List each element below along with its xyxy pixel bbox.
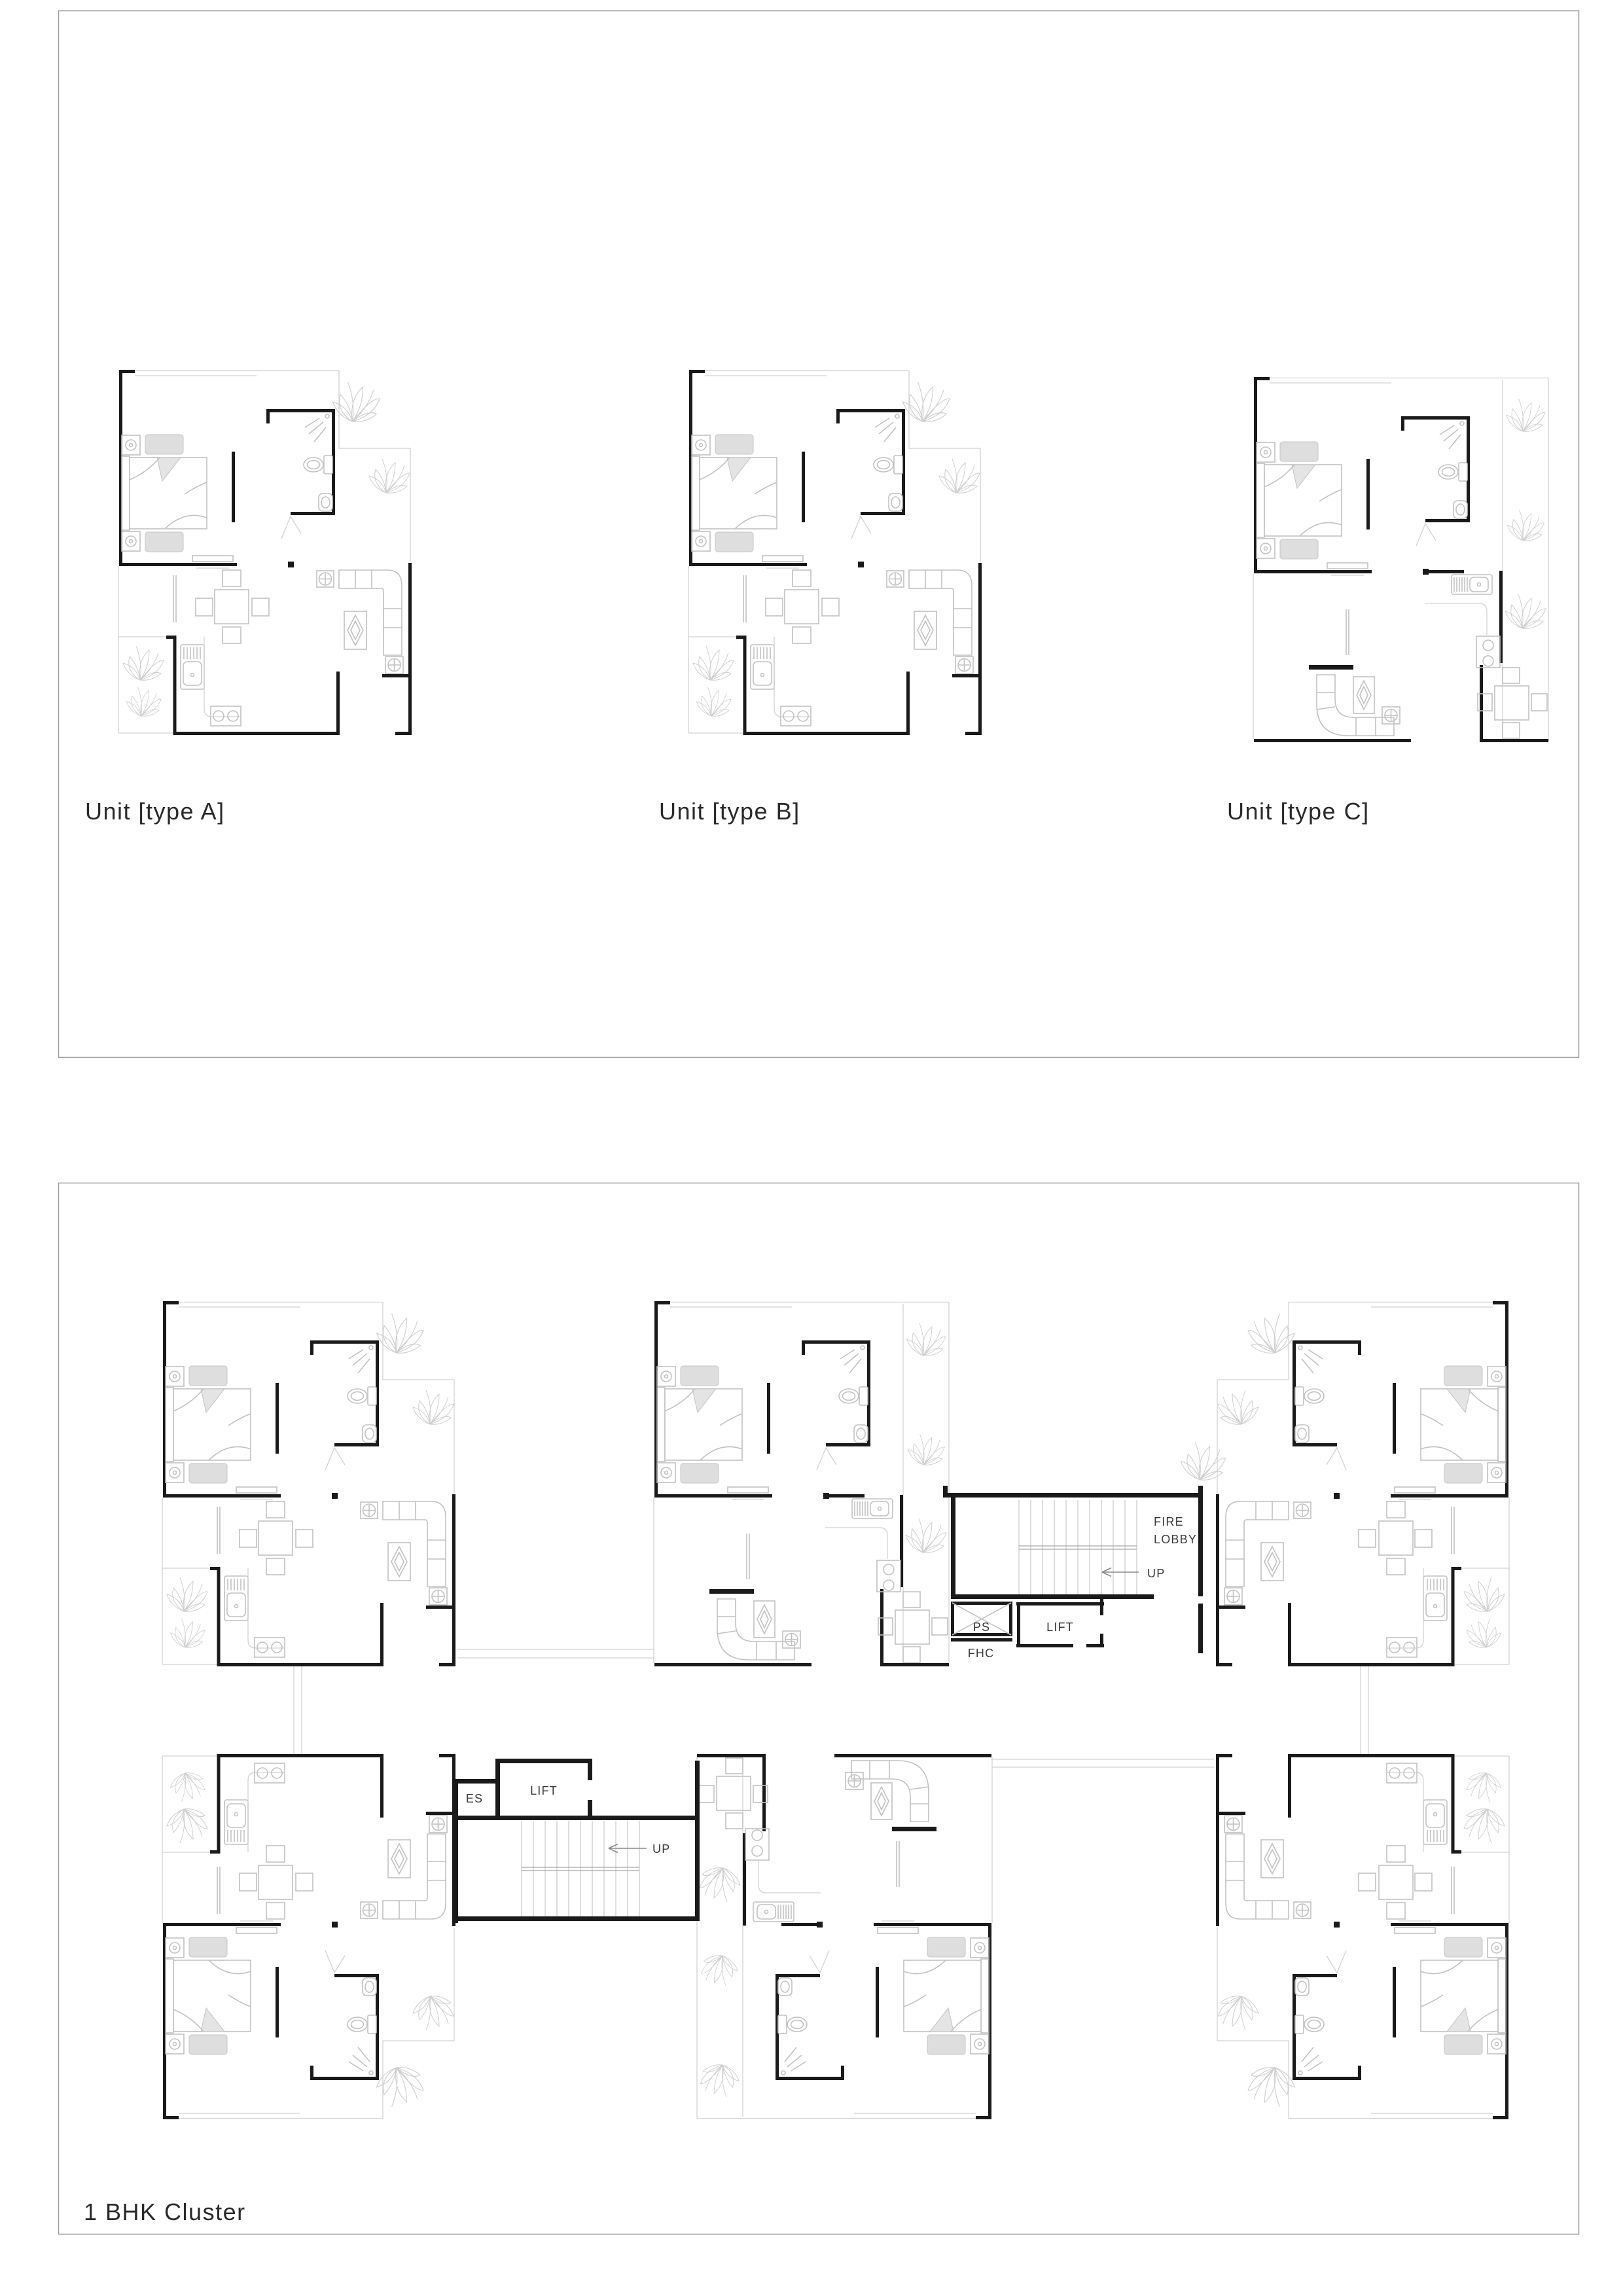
fire-lobby-label-line1: FIRE [1154,1515,1184,1528]
unit-a-label: Unit [type A] [85,798,225,825]
drawing-sheet: Unit [type A] Unit [type B] Unit [type C… [0,0,1623,2296]
fhc-label: FHC [968,1647,995,1660]
up-label: UP [652,1842,670,1856]
unit-c-label: Unit [type C] [1227,798,1370,825]
floor-plan-canvas: Unit [type A] Unit [type B] Unit [type C… [0,0,1623,2296]
es-label: ES [466,1792,483,1805]
lift-label: LIFT [1046,1621,1074,1634]
cluster-title: 1 BHK Cluster [84,2198,246,2225]
unit-b-label: Unit [type B] [659,798,800,825]
up-label: UP [1147,1567,1165,1580]
top-panel-frame [59,11,1579,1058]
ps-label: PS [973,1621,990,1634]
fire-lobby-label-line2: LOBBY [1154,1533,1197,1546]
lift-label: LIFT [530,1784,558,1797]
